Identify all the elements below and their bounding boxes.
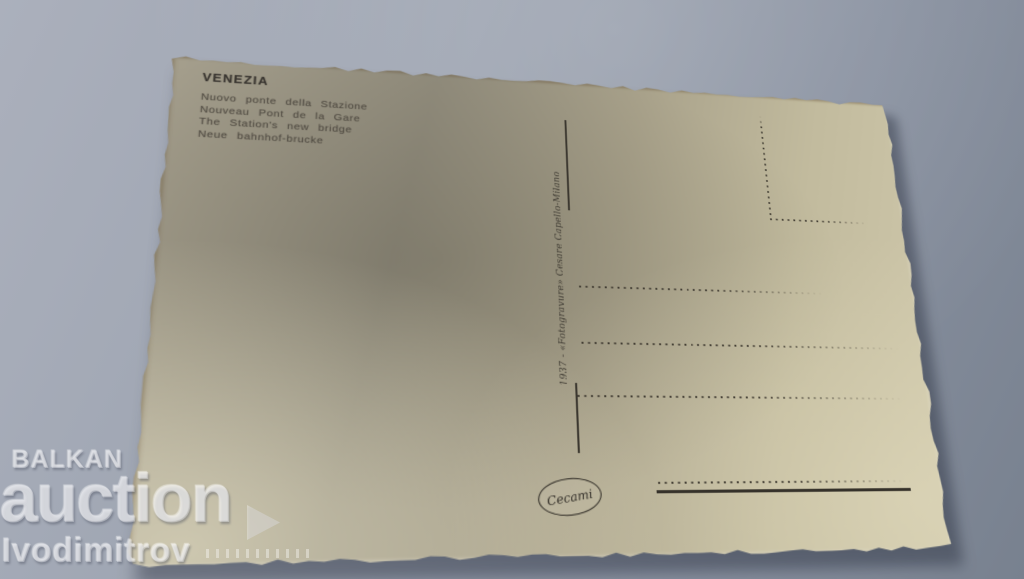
publisher-logo-text: Cecami — [546, 486, 594, 508]
photo-background: VENEZIA Nuovo ponte della Stazione Nouve… — [0, 0, 1024, 579]
signature-solid-line — [657, 488, 911, 493]
stamp-box-left-edge — [759, 116, 772, 219]
postcard-title: VENEZIA — [202, 71, 368, 94]
publisher-logo-oval: Cecami — [536, 475, 605, 519]
caption-block: VENEZIA Nuovo ponte della Stazione Nouve… — [197, 71, 368, 149]
watermark-balkan: BALKAN — [12, 446, 124, 475]
divider-line-bottom — [575, 383, 580, 453]
address-line-3 — [578, 395, 908, 400]
signature-dotted-line — [658, 480, 908, 484]
postcard-back: VENEZIA Nuovo ponte della Stazione Nouve… — [125, 55, 953, 568]
address-line-1 — [579, 286, 827, 295]
stamp-box-bottom-edge — [770, 218, 869, 224]
divider-line-top — [564, 120, 570, 210]
caption-list: Nuovo ponte della Stazione Nouveau Pont … — [197, 92, 367, 150]
address-line-2 — [581, 342, 902, 350]
imprint-text: 1937 - «Fotogravure» Cesare Capello-Mila… — [552, 208, 570, 386]
